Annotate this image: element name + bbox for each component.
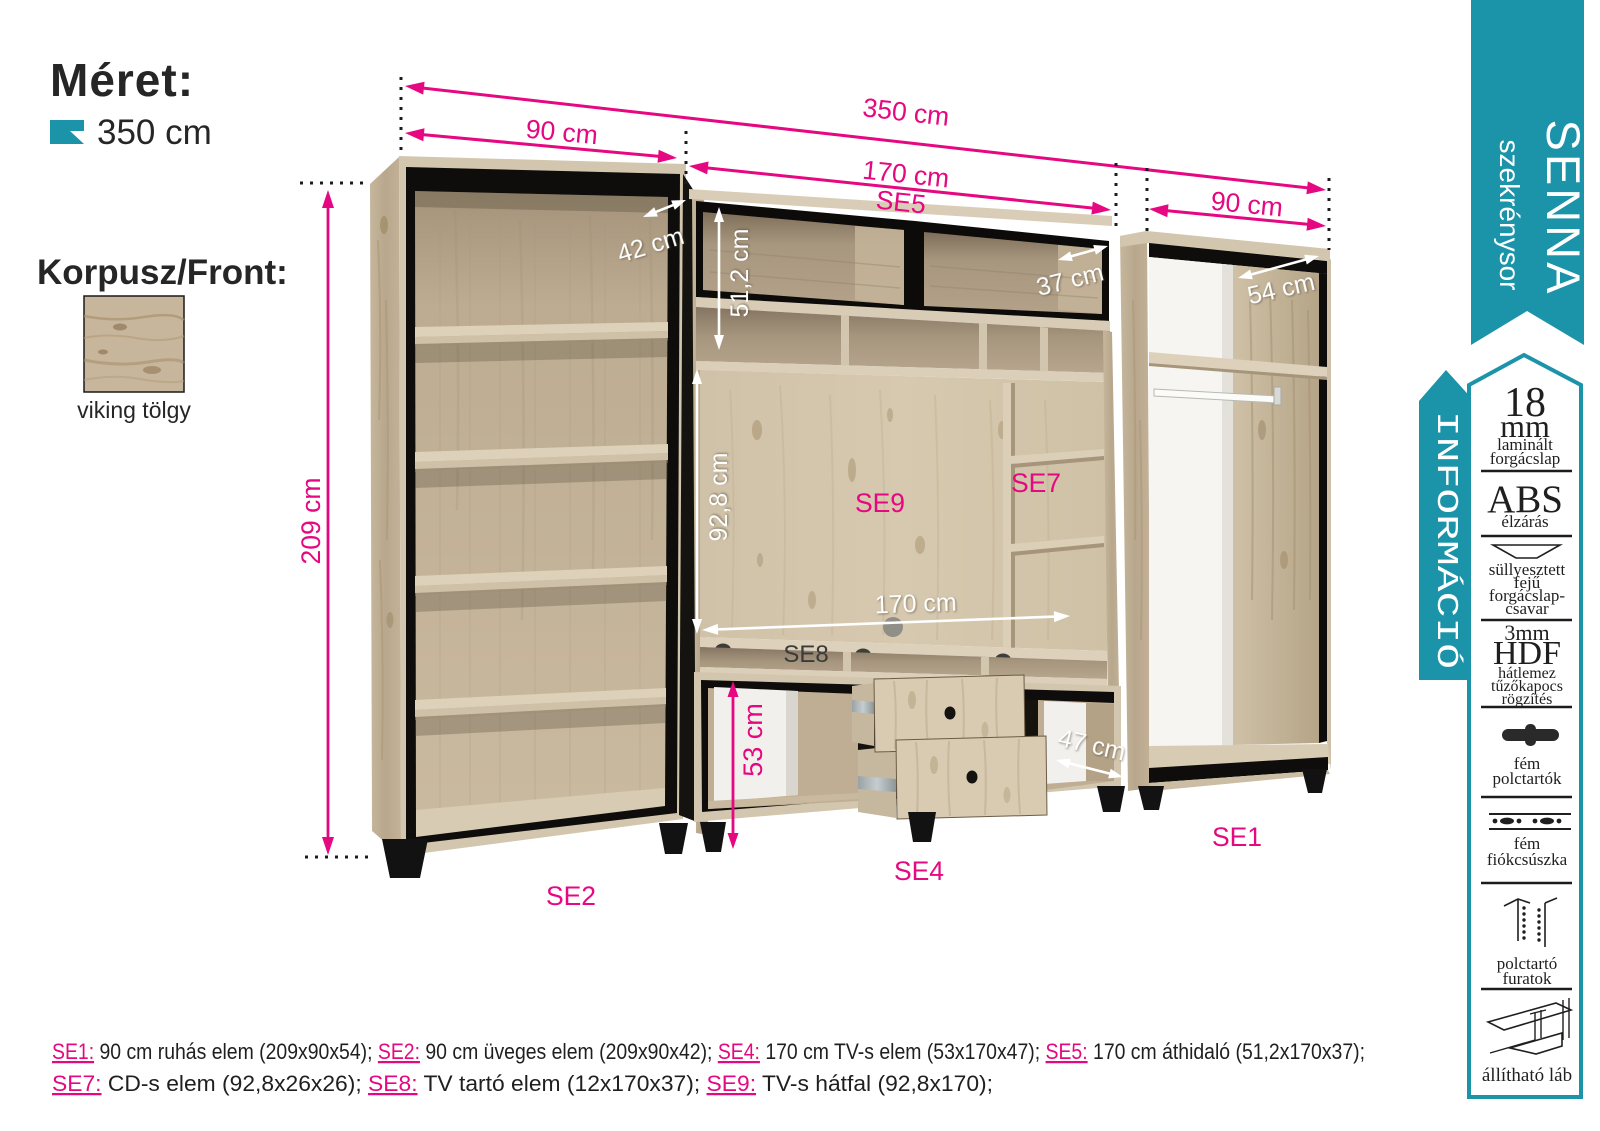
svg-text:SENNA: SENNA	[1537, 120, 1590, 297]
svg-text:rögzítés: rögzítés	[1502, 691, 1553, 708]
svg-text:SE7: SE7	[1011, 468, 1061, 498]
svg-text:szekrénysor: szekrénysor	[1494, 140, 1525, 291]
svg-text:53 cm: 53 cm	[738, 703, 768, 777]
svg-text:élzárás: élzárás	[1501, 512, 1548, 531]
svg-text:51,2 cm: 51,2 cm	[726, 229, 754, 318]
svg-text:forgácslap: forgácslap	[1490, 449, 1561, 468]
svg-text:SE1: 90 cm ruhás elem (209x90x: SE1: 90 cm ruhás elem (209x90x54); SE2: …	[52, 1039, 1365, 1064]
svg-text:209 cm: 209 cm	[296, 478, 326, 565]
svg-text:SE1: SE1	[1212, 822, 1262, 852]
svg-text:fiókcsúszka: fiókcsúszka	[1487, 850, 1568, 869]
svg-text:Korpusz/Front:: Korpusz/Front:	[37, 253, 288, 292]
svg-text:állítható láb: állítható láb	[1482, 1065, 1572, 1086]
svg-text:170 cm: 170 cm	[874, 589, 957, 620]
svg-text:viking tölgy: viking tölgy	[77, 397, 191, 423]
svg-text:SE9: SE9	[855, 488, 905, 518]
svg-text:SE2: SE2	[546, 881, 596, 911]
svg-text:92,8 cm: 92,8 cm	[705, 453, 733, 542]
svg-text:SE7: CD-s elem (92,8x26x26); S: SE7: CD-s elem (92,8x26x26); SE8: TV tar…	[52, 1071, 993, 1096]
svg-text:INFORMÁCIÓ: INFORMÁCIÓ	[1428, 411, 1465, 669]
svg-text:csavar: csavar	[1505, 599, 1549, 618]
svg-text:furatok: furatok	[1502, 969, 1552, 988]
svg-text:SE8: SE8	[783, 641, 828, 668]
svg-text:SE4: SE4	[894, 856, 944, 886]
svg-text:polctartók: polctartók	[1493, 769, 1562, 788]
svg-text:Méret:: Méret:	[50, 54, 194, 106]
svg-text:350 cm: 350 cm	[97, 113, 212, 152]
svg-text:SE5: SE5	[874, 185, 927, 220]
